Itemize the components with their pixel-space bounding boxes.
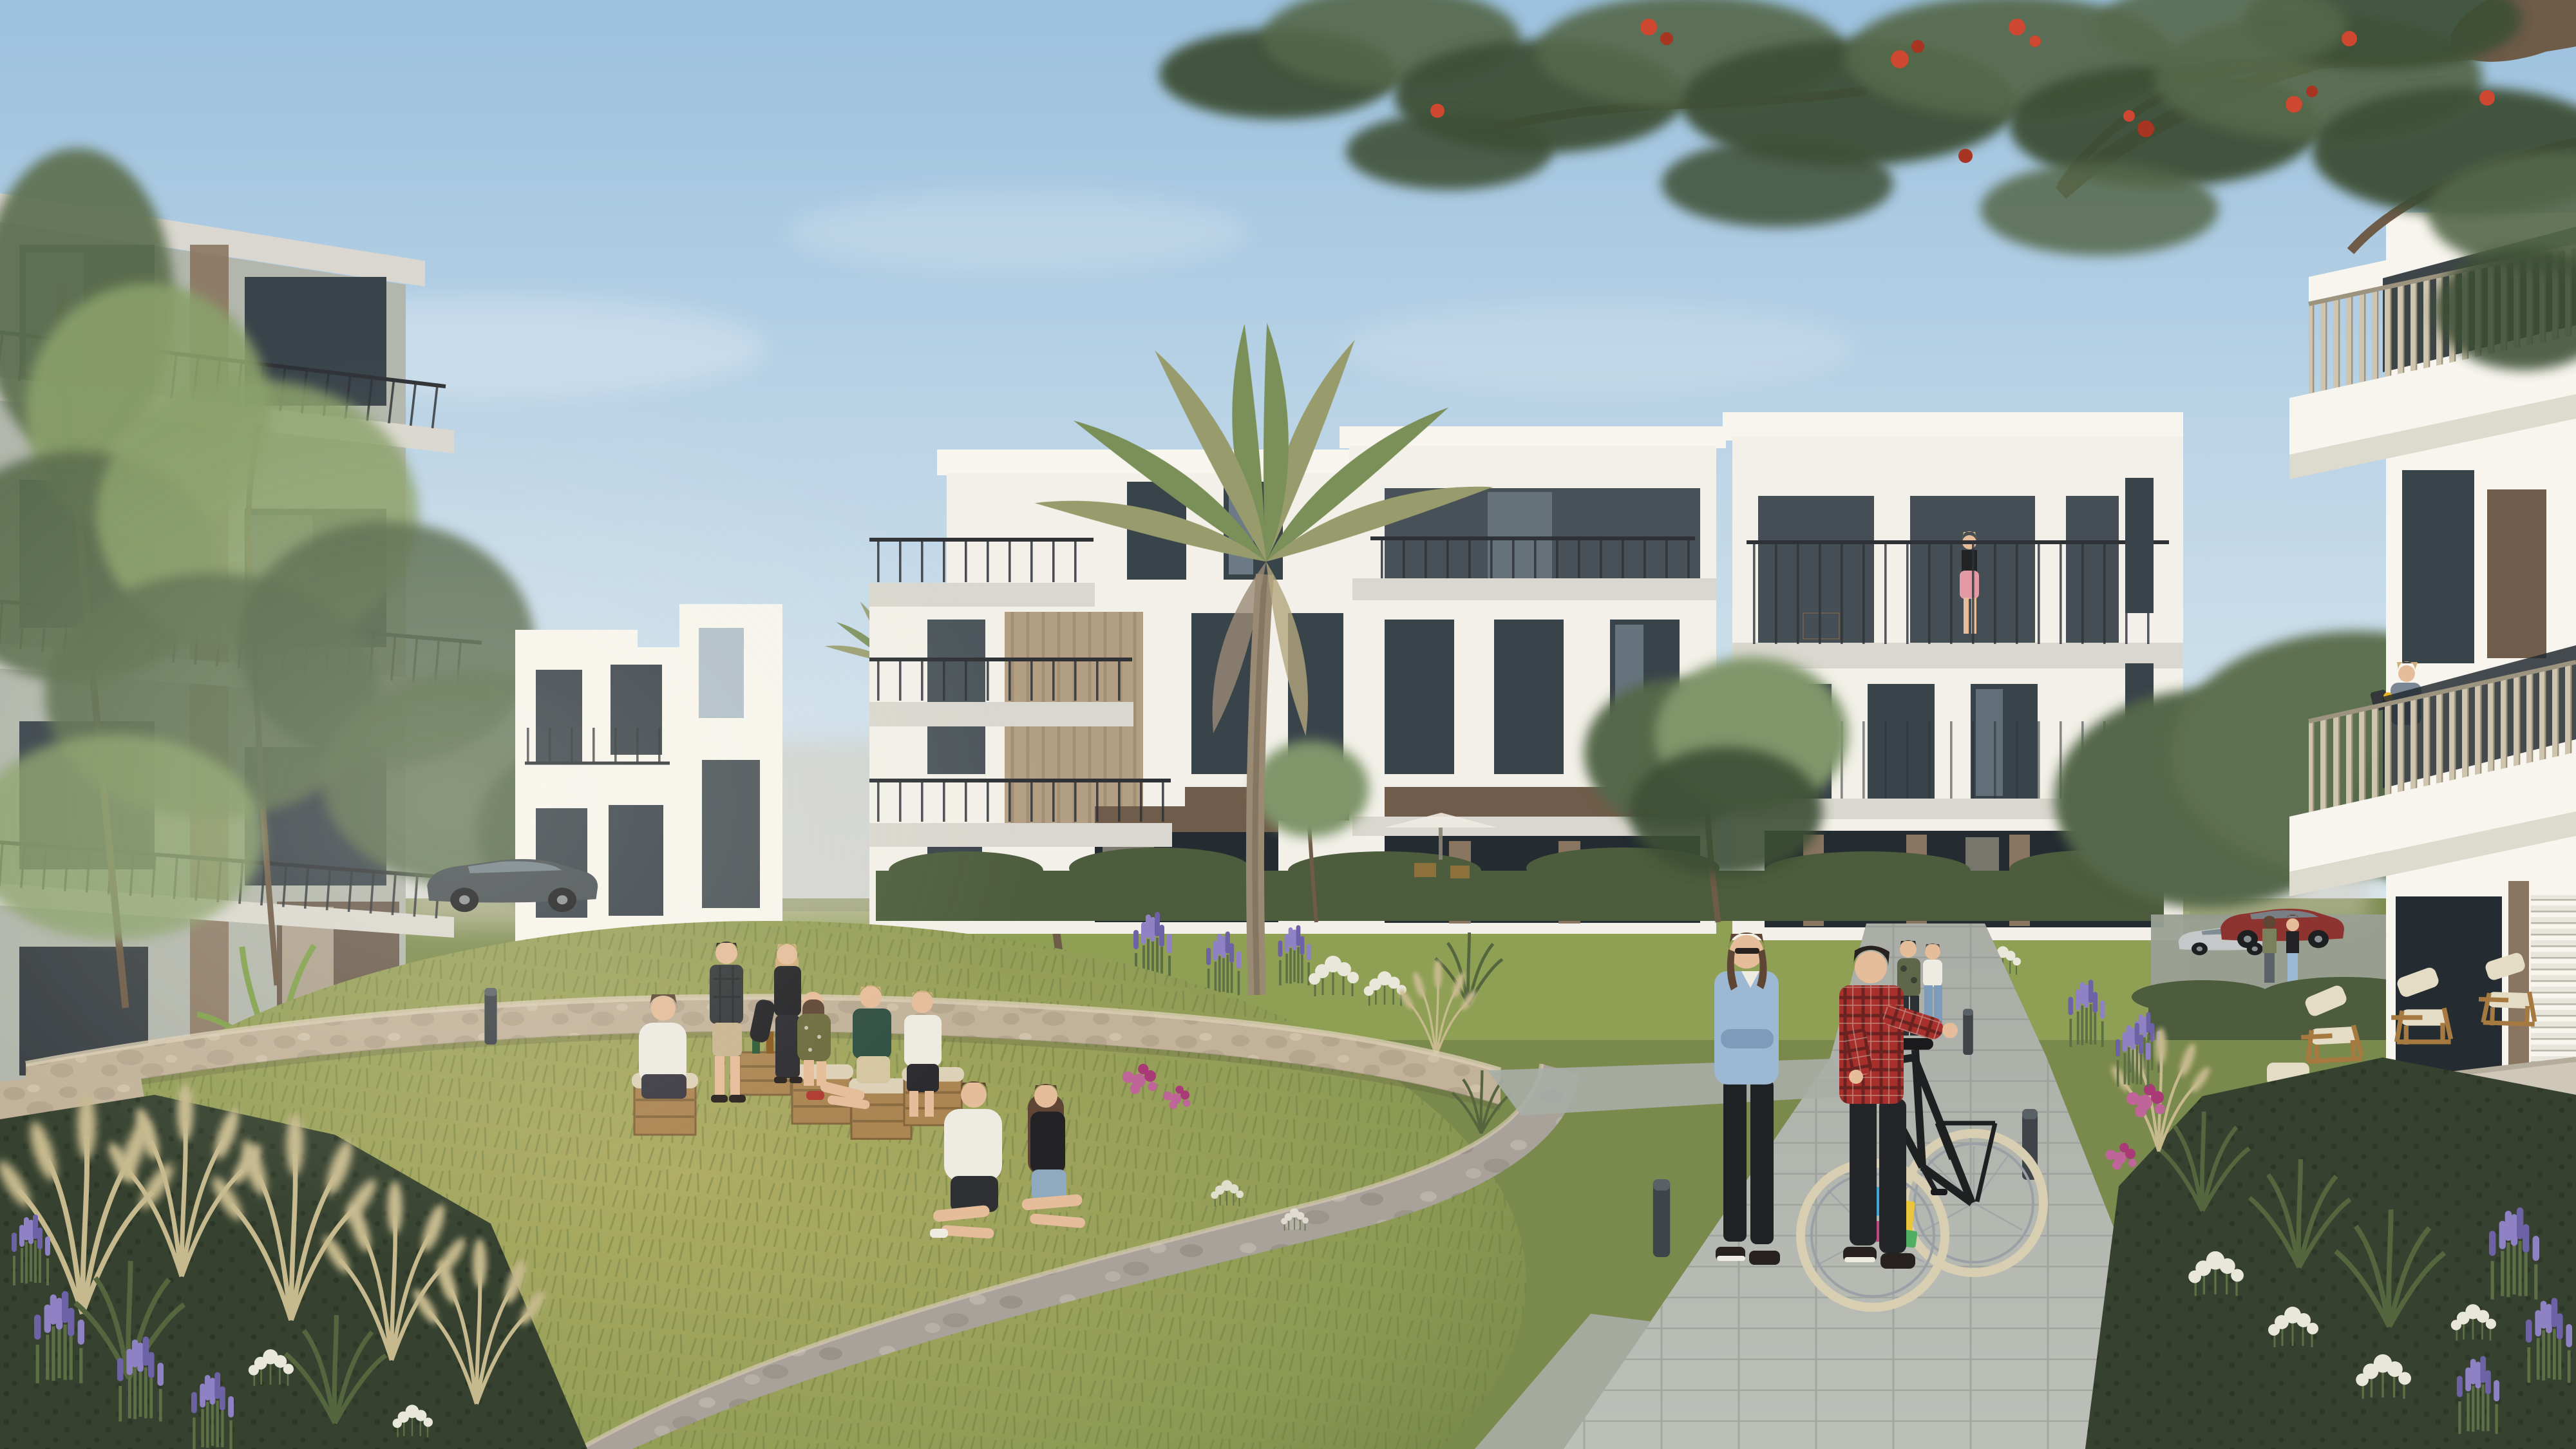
- architectural-render: [0, 0, 2576, 1449]
- sunglasses: [1735, 948, 1759, 954]
- bike-saddle: [1899, 1038, 1933, 1050]
- render-stage: [0, 0, 2576, 1449]
